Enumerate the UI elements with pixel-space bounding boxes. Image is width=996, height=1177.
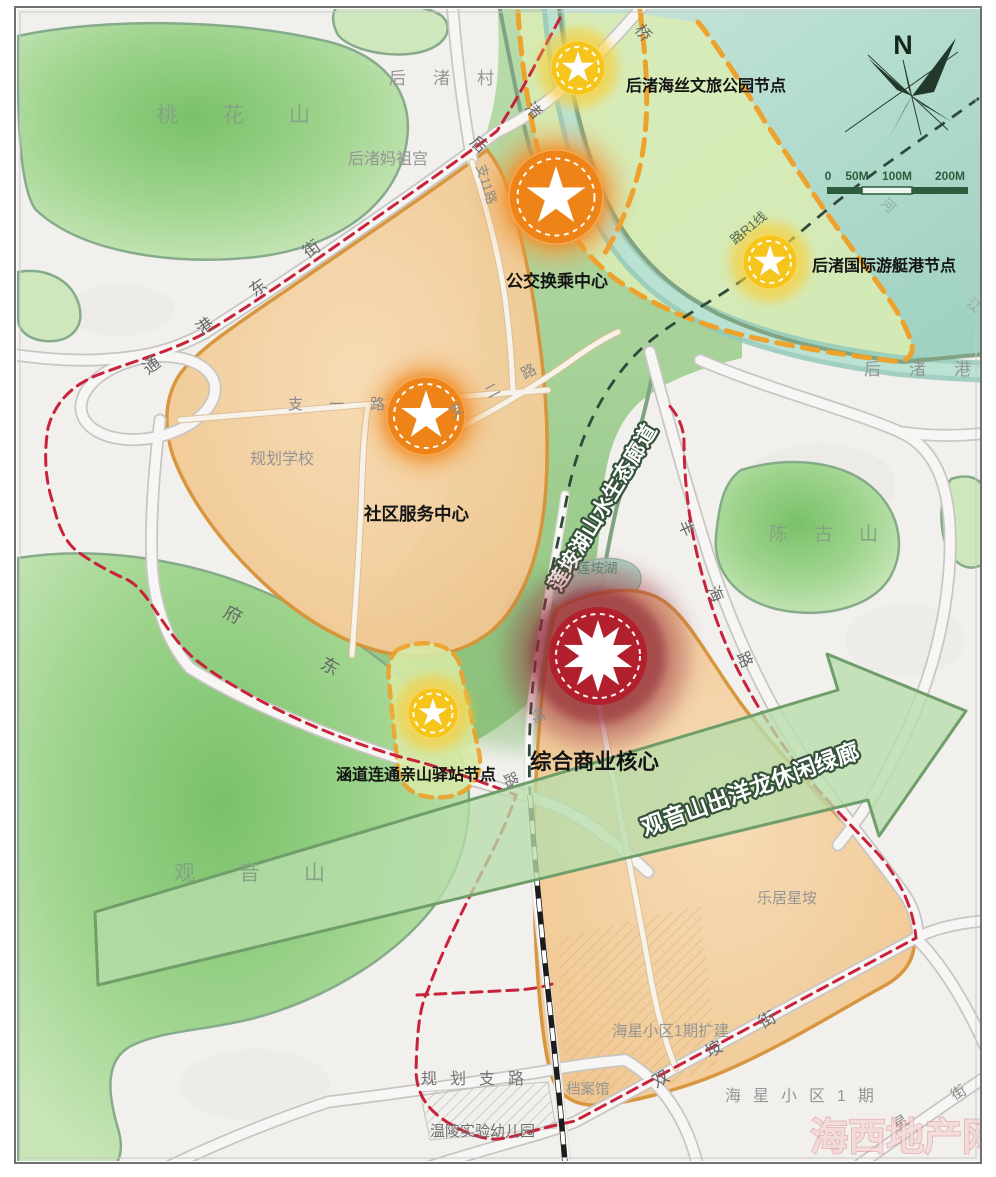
zhi1-road-label: 支一路: [288, 396, 411, 413]
scale-tick-100: 100M: [882, 169, 912, 183]
planning-map-page: 莲垵湖山水生态廊道 观音山出洋龙休闲绿廊: [0, 0, 996, 1177]
guanyinshan-label: 观音山: [174, 862, 369, 885]
yacht-node-label: 后渚国际游艇港节点: [812, 256, 956, 275]
bus-transfer-node: [490, 131, 622, 263]
lianan-lake-label: 莲垵湖: [577, 561, 618, 576]
taohuashan-label: 桃花山: [157, 104, 355, 127]
planned-branch-road-label: 规划支路: [421, 1070, 537, 1088]
watermark: 海西地产网: [810, 1117, 996, 1159]
planned-school-label: 规划学校: [250, 450, 314, 468]
chengushan-label: 陈古山: [769, 523, 904, 545]
houzhu-village-label: 后渚村: [389, 69, 521, 88]
scale-tick-200: 200M: [935, 169, 965, 183]
scale-tick-50: 50M: [845, 169, 868, 183]
scale-bar: 0 50M 100M 200M: [825, 169, 968, 194]
scale-tick-0: 0: [825, 169, 832, 183]
archives-label: 档案馆: [566, 1080, 610, 1098]
bus-node-label: 公交换乘中心: [506, 271, 608, 291]
kindergarten-label: 温陵实验幼儿园: [430, 1123, 535, 1140]
mazu-temple-label: 后渚妈祖宫: [348, 150, 428, 168]
station-node-label: 涵道连通亲山驿站节点: [336, 765, 496, 784]
core-node-label: 综合商业核心: [530, 749, 660, 774]
haixing-phase1-label: 海星小区1期: [725, 1087, 886, 1105]
park-node: [538, 28, 618, 108]
planning-map: 莲垵湖山水生态廊道 观音山出洋龙休闲绿廊: [0, 0, 996, 1177]
leju-xingan-label: 乐居星垵: [757, 890, 817, 907]
haixing-expansion-label: 海星小区1期扩建: [612, 1022, 729, 1040]
park-node-label: 后渚海丝文旅公园节点: [626, 76, 786, 95]
north-label: N: [893, 30, 913, 60]
community-node-label: 社区服务中心: [363, 504, 469, 524]
